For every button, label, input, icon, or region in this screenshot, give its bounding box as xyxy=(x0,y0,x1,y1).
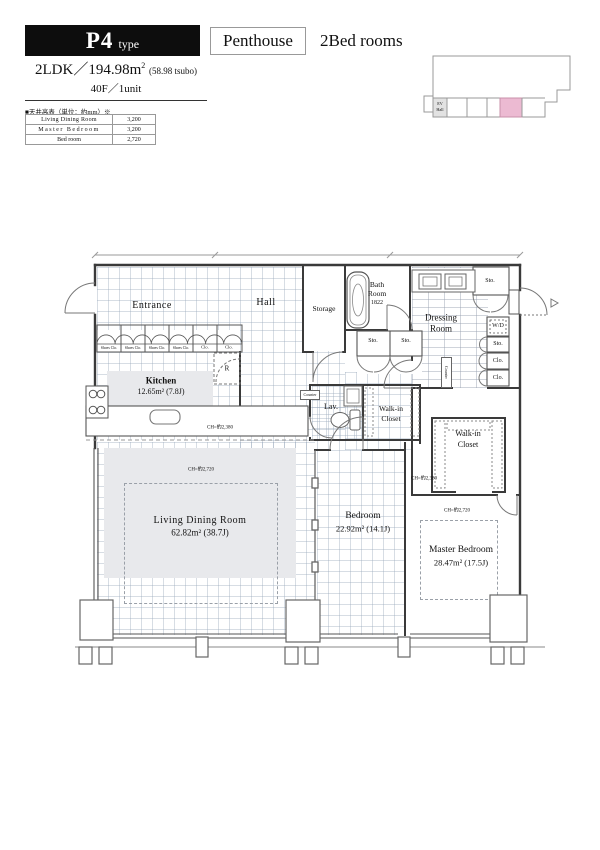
master-bedroom-area-label: 28.47m² (17.5J) xyxy=(434,559,488,568)
floor-plan-page: P4 type Penthouse 2Bed rooms 2LDK／194.98… xyxy=(0,0,600,850)
wic1-label: Walk-in xyxy=(379,405,403,413)
kitchen-island-counter xyxy=(86,406,308,436)
door-direction-arrow xyxy=(551,299,558,307)
sto-label-b1: Sto. xyxy=(368,338,378,344)
hall-label: Hall xyxy=(256,298,275,309)
ch-label-kitchen: CH=約2,380 xyxy=(207,425,233,430)
fridge-label: R xyxy=(225,365,230,372)
shoes-clo-label1: Shoes Clo. xyxy=(101,346,117,350)
sto-label-b2: Sto. xyxy=(401,338,411,344)
dressing-room-label: Dressing xyxy=(425,313,457,322)
vanity-sinks-icon xyxy=(412,270,475,292)
sto-cells-under-bath xyxy=(357,331,422,356)
key-plan-highlight-cell xyxy=(500,98,522,117)
bedroom-label: Bedroom xyxy=(345,512,380,522)
lav-label: Lav. xyxy=(324,403,338,411)
clo-label-right2: Clo. xyxy=(493,375,503,381)
counter-label-h: Counter xyxy=(300,390,320,400)
clo-label-s1: Clo. xyxy=(201,346,209,351)
bath-room-label: Bath xyxy=(370,281,384,289)
living-room-area-label: 62.82m² (38.7J) xyxy=(171,528,228,537)
toilet-icon xyxy=(331,410,360,430)
clo-label-s2: Clo. xyxy=(225,346,233,351)
balcony-pillars xyxy=(75,595,545,664)
ev-hall-label: EV xyxy=(437,102,443,106)
shoes-clo-label2: Shoes Clo. xyxy=(125,346,141,350)
ev-hall-label2: Hall xyxy=(436,108,443,112)
storage-label: Storage xyxy=(313,305,336,313)
floor-plan-drawing xyxy=(0,0,600,850)
shoes-clo-label4: Shoes Clo. xyxy=(173,346,189,350)
dimension-line xyxy=(92,252,523,258)
stove-icon xyxy=(86,386,108,418)
wic1-label2: Closet xyxy=(381,415,400,423)
master-bedroom-label: Master Bedroom xyxy=(429,546,493,556)
ch-label-living: CH=約2,720 xyxy=(188,467,214,472)
counter-label-v: Counter xyxy=(441,357,452,388)
wd-label: W/D xyxy=(492,323,504,329)
sto-label-top-right: Sto. xyxy=(485,278,495,284)
bath-size-label: 1822 xyxy=(371,300,383,306)
wic2-label: Walk-in xyxy=(455,430,481,438)
bath-room-label2: Room xyxy=(368,290,386,298)
clo-label-right1: Clo. xyxy=(493,358,503,364)
entrance-label: Entrance xyxy=(132,301,172,312)
sto-label-right: Sto. xyxy=(493,341,503,347)
inner-walls xyxy=(240,265,520,635)
wic2-label2: Closet xyxy=(458,441,478,449)
bathtub-icon xyxy=(347,272,369,328)
wic-hanger-rails xyxy=(365,388,502,488)
bedroom-area-label: 22.92m² (14.1J) xyxy=(336,525,390,534)
ch-label-wic: CH=約2,380 xyxy=(411,476,437,481)
key-plan xyxy=(424,56,570,117)
living-room-label: Living Dining Room xyxy=(154,516,247,527)
dressing-room-label2: Room xyxy=(430,324,452,333)
ch-label-master: CH=約2,720 xyxy=(444,508,470,513)
kitchen-label: Kitchen xyxy=(146,376,177,385)
kitchen-area-label: 12.65m² (7.8J) xyxy=(137,388,184,396)
shoes-clo-label3: Shoes Clo. xyxy=(149,346,165,350)
lav-sink-icon xyxy=(344,386,362,406)
shoes-closet-row xyxy=(97,325,242,352)
